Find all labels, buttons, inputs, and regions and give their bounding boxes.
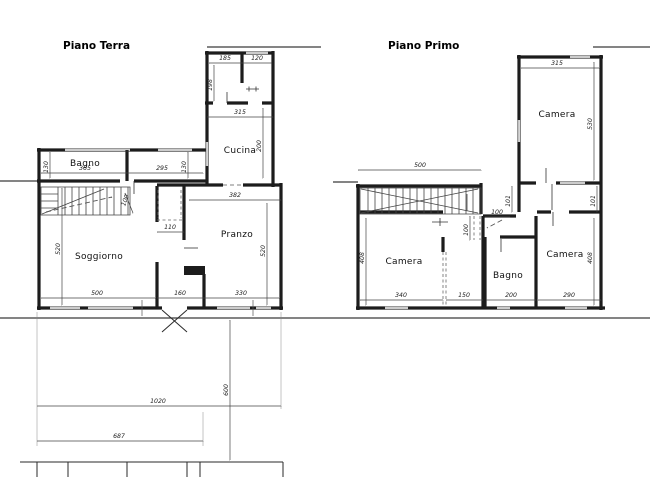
door-leaf-camera-left [432, 218, 448, 226]
dashed-lines-piano-primo [443, 216, 502, 305]
dim-label-295: 295 [156, 165, 168, 172]
dim-label-520-left: 520 [55, 243, 62, 255]
dim-label-198: 198 [207, 79, 214, 91]
dim-label-315: 315 [551, 60, 563, 67]
dim-label-100-landing-h: 100 [463, 224, 470, 236]
dim-label-530: 530 [587, 118, 594, 130]
walls-piano-primo [356, 55, 605, 310]
dim-label-408-right: 408 [587, 252, 594, 264]
dim-label-340: 340 [395, 292, 407, 299]
floor-title-primo: Piano Primo [388, 40, 459, 52]
landing-direction-arrow [487, 220, 502, 228]
floor-title-terra: Piano Terra [63, 40, 130, 52]
dim-label-110: 110 [164, 224, 176, 231]
dim-label-1020: 1020 [150, 398, 166, 405]
staircase-piano-primo [360, 188, 481, 214]
dim-label-101-right: 101 [590, 195, 597, 207]
floor-plan-sheet: Piano Terra [0, 0, 650, 479]
dim-label-500: 500 [91, 290, 103, 297]
dim-label-382: 382 [229, 192, 241, 199]
dim-label-200: 200 [256, 140, 263, 152]
dim-label-185: 185 [219, 55, 231, 62]
room-label-camera-top: Camera [538, 110, 575, 120]
dim-label-500: 500 [414, 162, 426, 169]
dim-label-130-right: 130 [181, 161, 188, 173]
room-label-cucina: Cucina [224, 146, 256, 156]
dim-label-100-stair: 100 [120, 194, 131, 208]
dim-label-160: 160 [174, 290, 186, 297]
walls-piano-terra [37, 51, 283, 310]
stair-diagonal [42, 189, 104, 214]
dim-label-100-landing-w: 100 [491, 209, 503, 216]
dim-label-408-left: 408 [359, 252, 366, 264]
dim-label-290: 290 [563, 292, 575, 299]
dim-label-365: 365 [79, 165, 91, 172]
floor-plan-drawing: Piano Terra [0, 0, 650, 479]
site-edge-ticks [37, 462, 283, 477]
dim-label-315: 315 [234, 109, 246, 116]
dim-label-150: 150 [458, 292, 470, 299]
dim-label-101-left: 101 [505, 195, 512, 207]
floor-piano-terra: Piano Terra [37, 40, 283, 460]
room-label-pranzo: Pranzo [221, 230, 253, 240]
dim-label-130-left: 130 [43, 161, 50, 173]
room-label-soggiorno: Soggiorno [75, 252, 123, 262]
dim-label-330: 330 [235, 290, 247, 297]
room-label-bagno: Bagno [493, 271, 523, 281]
dim-label-687: 687 [113, 433, 125, 440]
staircase-piano-terra [41, 187, 130, 215]
entry-door-symbol [162, 310, 187, 332]
room-label-camera-right: Camera [546, 250, 583, 260]
dim-label-120: 120 [251, 55, 263, 62]
floor-piano-primo: Piano Primo [356, 40, 605, 310]
stair-diagonals [361, 189, 478, 213]
dim-label-600: 600 [223, 384, 230, 396]
dim-label-200: 200 [505, 292, 517, 299]
radiator-smallroom [246, 87, 259, 92]
dim-label-520-right: 520 [260, 245, 267, 257]
wall-jog-entry [184, 266, 205, 275]
hall-dashed-lines [157, 190, 184, 220]
room-label-camera-left: Camera [385, 257, 422, 267]
